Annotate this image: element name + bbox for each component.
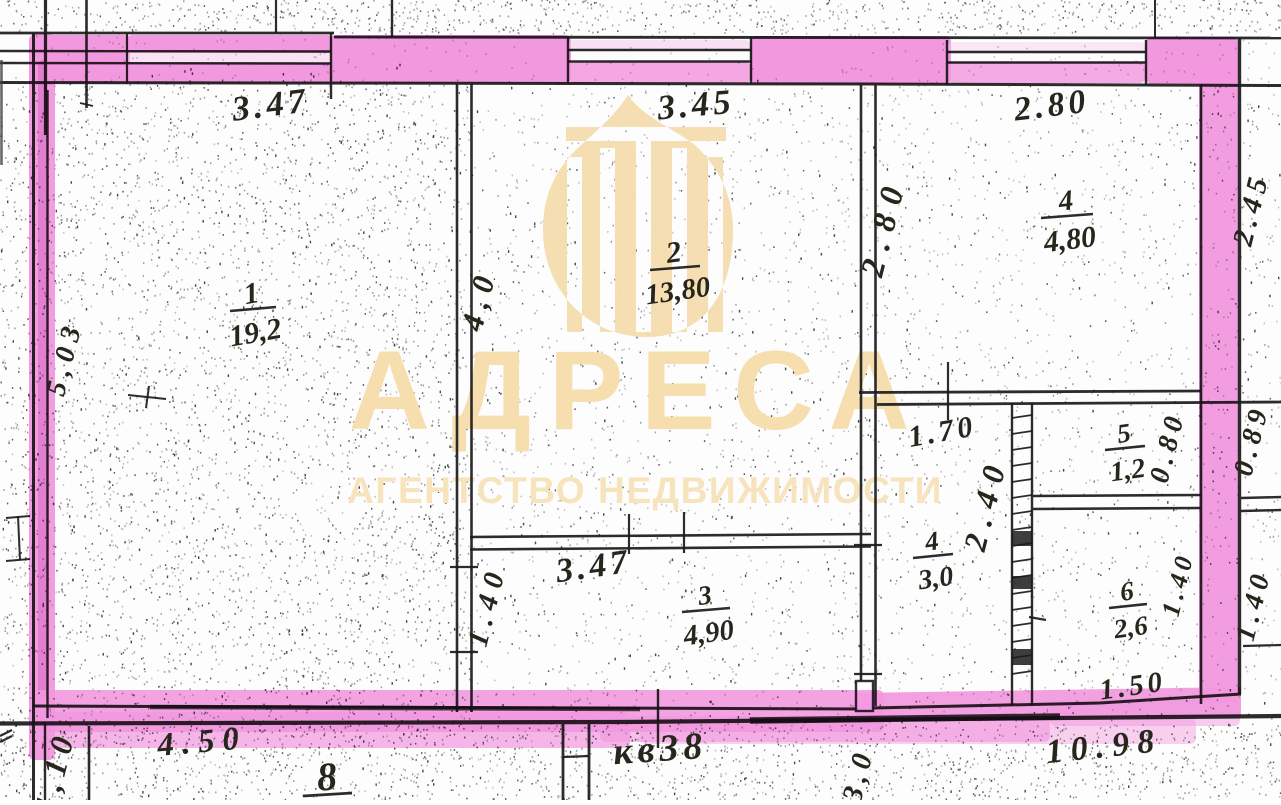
svg-text:АГЕНТСТВО НЕДВИЖИМОСТИ: АГЕНТСТВО НЕДВИЖИМОСТИ	[347, 470, 943, 511]
svg-text:2,6: 2,6	[1111, 610, 1150, 645]
svg-text:1,2: 1,2	[1108, 453, 1147, 489]
svg-text:3,0: 3,0	[915, 561, 955, 597]
svg-text:кв38: кв38	[612, 725, 709, 773]
svg-text:3.45: 3.45	[655, 82, 736, 128]
svg-text:4,80: 4,80	[1041, 220, 1098, 259]
svg-text:АДРЕСА: АДРЕСА	[349, 328, 927, 453]
